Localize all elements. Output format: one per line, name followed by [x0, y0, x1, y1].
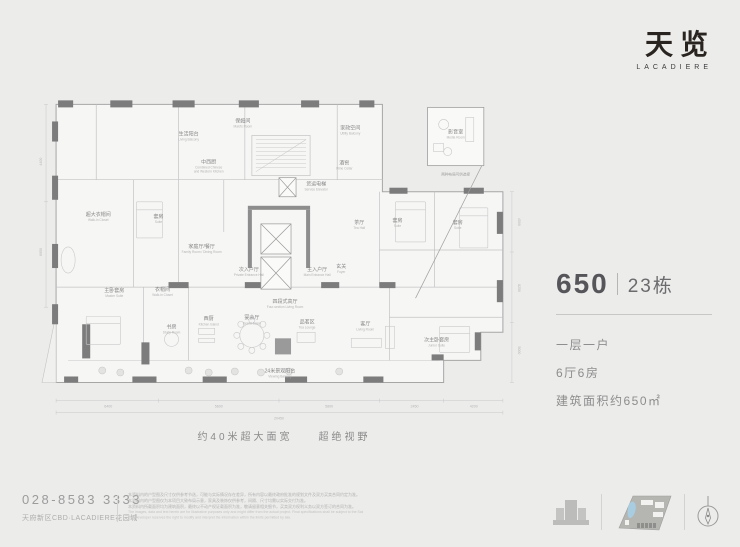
info-divider [556, 314, 712, 315]
label: Living Balcony [178, 138, 199, 142]
label: 套房 [453, 219, 463, 226]
label: 影音室 [448, 128, 463, 135]
unit-detail-list: 一层一户6厅6房建筑面积约650㎡ [556, 331, 716, 415]
label: 4200 [470, 405, 478, 409]
label: 生活阳台 [179, 131, 199, 138]
label: 货运电梯 [306, 181, 326, 188]
grand-piano [275, 338, 291, 354]
label: Wine Cellar [336, 167, 353, 171]
label: 家政空间 [340, 124, 360, 131]
label: Viewing Balcony [268, 374, 292, 378]
footer-divider [684, 494, 685, 530]
label: Suite [394, 224, 402, 228]
building-number: 23栋 [628, 271, 674, 298]
label: Junior Suite [428, 343, 445, 347]
disclaimer-line: The Developer reserves the right to modi… [128, 515, 363, 520]
terrace-edge [42, 314, 56, 382]
label: Main Entrance Hall [304, 273, 331, 277]
footer-divider [117, 495, 118, 522]
brand-logo: 天览 LACADIERE [636, 30, 708, 71]
label: 次主卧套房 [424, 336, 449, 343]
contact-block: 028-8583 3333 天府新区CBD·LACADIERE花园城 [22, 492, 142, 523]
label: Four-section Living Room [267, 305, 304, 309]
label: Kitchen Island [199, 322, 219, 326]
siteplan-icon [611, 490, 677, 539]
unit-detail-line: 建筑面积约650㎡ [556, 387, 716, 415]
label: 客厅 [360, 320, 370, 327]
plan-caption: 约40米超大面宽 超绝视野 [38, 428, 530, 443]
label: Walk-in Closet [152, 293, 173, 297]
disclaimer-en: The images, data and text herein are for… [128, 510, 363, 521]
label: Media Room [447, 136, 465, 140]
brochure-page: 天览 LACADIERE [0, 0, 740, 547]
label: 5800 [325, 405, 333, 409]
label: 衣帽间 [155, 286, 170, 293]
project-address: 天府新区CBD·LACADIERE花园城 [22, 513, 142, 523]
callout-note: 两种布局可供选择 [441, 172, 470, 177]
label: 4400 [39, 158, 43, 166]
label: Tea Hall [354, 226, 366, 230]
label: 中西厨 [201, 159, 216, 166]
label: Living Room [356, 327, 374, 331]
label: 品茗区 [300, 318, 315, 325]
label: Private Entrance Hall [234, 273, 264, 277]
label: 玄关 [336, 263, 346, 270]
label: and Western Kitchen [194, 170, 224, 174]
label: Walk-in Closet [88, 218, 109, 222]
label: 4500 [517, 218, 521, 226]
label: 次入户厅 [239, 266, 259, 273]
label: 保姆间 [235, 117, 250, 124]
label: Suite [155, 220, 163, 224]
label: 茶厅 [354, 219, 364, 226]
label: 8250 [517, 284, 521, 292]
label: Service Elevator [304, 188, 328, 192]
floorplan-drawing: 生活阳台Living Balcony保姆间Maid's Room家政空间Util… [38, 90, 530, 424]
label: Tea Lounge [299, 325, 316, 329]
label: Maid's Room [234, 124, 253, 128]
disclaimer-line: The images, data and text herein are for… [128, 510, 363, 515]
label: 酒窖 [339, 160, 349, 167]
unit-info-panel: 650 23栋 一层一户6厅6房建筑面积约650㎡ [556, 268, 716, 415]
disclaimer-cn: 本资料内的户型图及尺寸仅供参考节选，可能与实际情况存在差异，所有内容以最终政府批… [128, 492, 363, 510]
label: Foyer [337, 270, 346, 274]
label: 主卧套房 [104, 287, 124, 294]
label: Master Suite [105, 294, 123, 298]
disclaimer-block: 本资料内的户型图及尺寸仅供参考节选，可能与实际情况存在差异，所有内容以最终政府批… [128, 492, 363, 534]
floorplan: 生活阳台Living Balcony保姆间Maid's Room家政空间Util… [38, 90, 530, 424]
label: 6400 [104, 405, 112, 409]
footer-divider [601, 494, 602, 530]
compass-icon [695, 494, 721, 535]
label: 5600 [215, 405, 223, 409]
unit-detail-line: 一层一户 [556, 331, 716, 359]
label: 套房 [153, 213, 163, 220]
label: 20450 [274, 417, 284, 421]
label: 宴会厅 [244, 314, 259, 321]
label: 套房 [392, 217, 402, 224]
headline-divider [617, 273, 618, 295]
label: Family Room / Dining Room [182, 250, 222, 254]
label: 书房 [167, 323, 177, 330]
brand-name-en: LACADIERE [636, 64, 712, 71]
label: 5000 [517, 346, 521, 354]
label: 2450 [411, 405, 419, 409]
phone-number: 028-8583 3333 [22, 492, 142, 507]
label: 家庭厅/餐厅 [188, 243, 214, 250]
label: 24米景观阳台 [265, 367, 296, 374]
label: 四段式高厅 [272, 298, 297, 305]
unit-area-number: 650 [556, 268, 609, 300]
unit-headline: 650 23栋 [556, 268, 716, 300]
label: Grand Salon [243, 321, 261, 325]
label: Study Room [163, 330, 181, 334]
brand-name-cn: 天览 [636, 30, 715, 61]
label: Suite [454, 226, 462, 230]
unit-detail-line: 6厅6房 [556, 359, 716, 387]
label: 超大衣帽间 [86, 211, 111, 218]
label: 主入户厅 [307, 266, 327, 273]
label: Utility Balcony [340, 132, 361, 136]
label: 6950 [39, 248, 43, 256]
building-icon [550, 498, 592, 531]
